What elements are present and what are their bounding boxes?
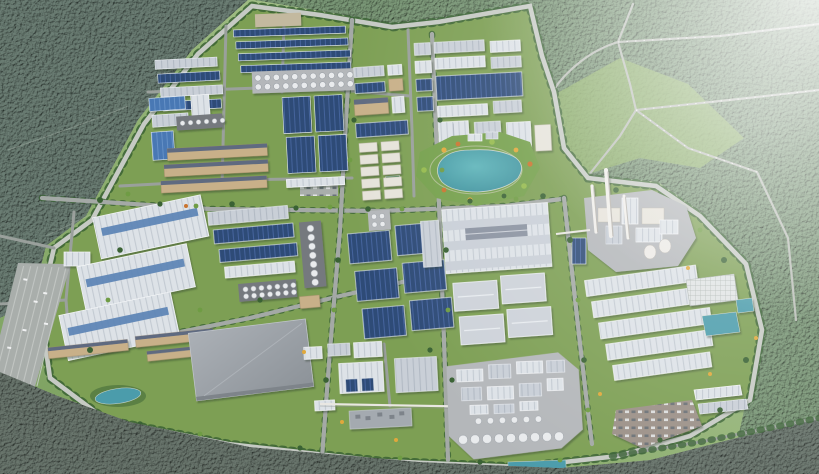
aerial-industrial-park-render [0,0,819,474]
render-canvas [0,0,819,474]
haze-corner [0,0,819,474]
